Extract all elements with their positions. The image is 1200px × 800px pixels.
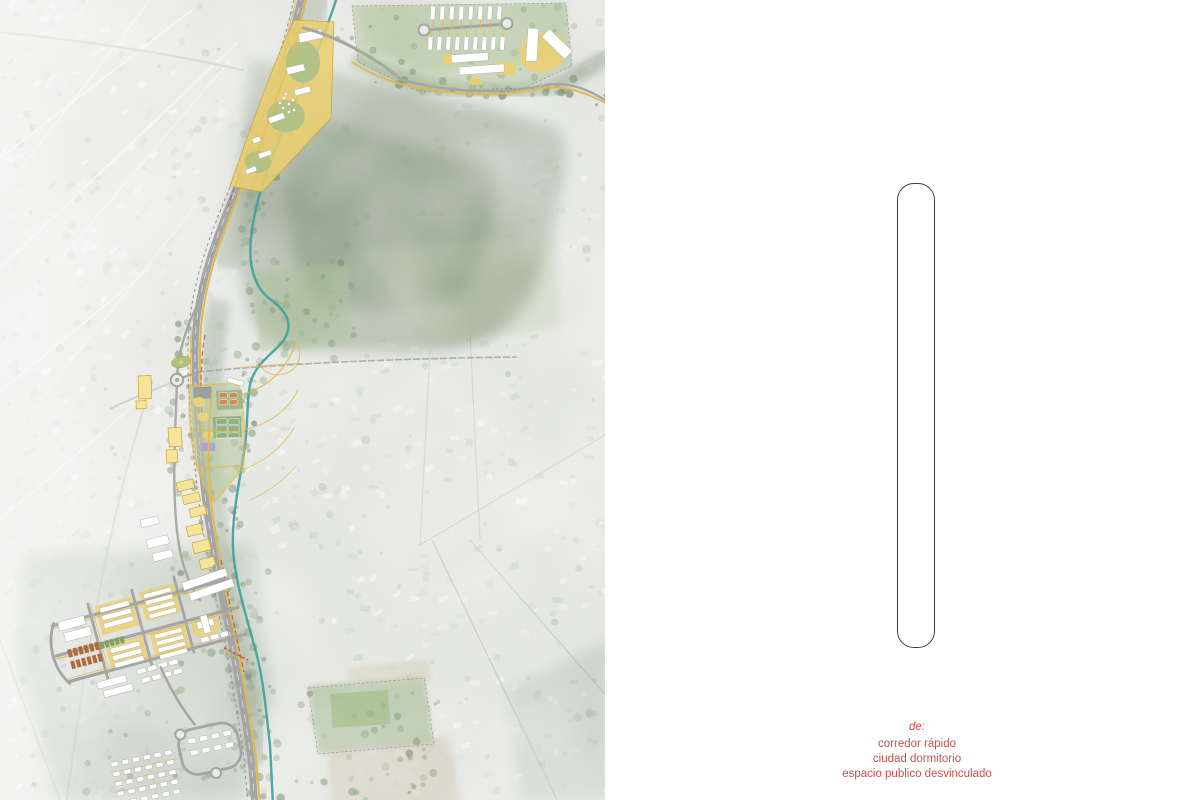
culdesac xyxy=(502,18,513,29)
corridor-capsule-outline xyxy=(897,183,935,648)
caption-line-3: espacio publico desvinculado xyxy=(842,767,992,782)
pitch xyxy=(330,690,390,728)
caption-prefix: de: xyxy=(842,720,992,735)
caption-line-2: ciudad dormitorio xyxy=(842,752,992,767)
masterplan-map-svg xyxy=(0,0,605,800)
caption-line-1: corredor rápido xyxy=(842,737,992,752)
masterplan-map xyxy=(0,0,605,800)
pavilion-building xyxy=(194,387,212,399)
caption-block: de: corredor rápido ciudad dormitorio es… xyxy=(842,720,992,782)
analysis-panel: de: corredor rápido ciudad dormitorio es… xyxy=(605,0,1200,800)
culdesac xyxy=(419,25,430,36)
